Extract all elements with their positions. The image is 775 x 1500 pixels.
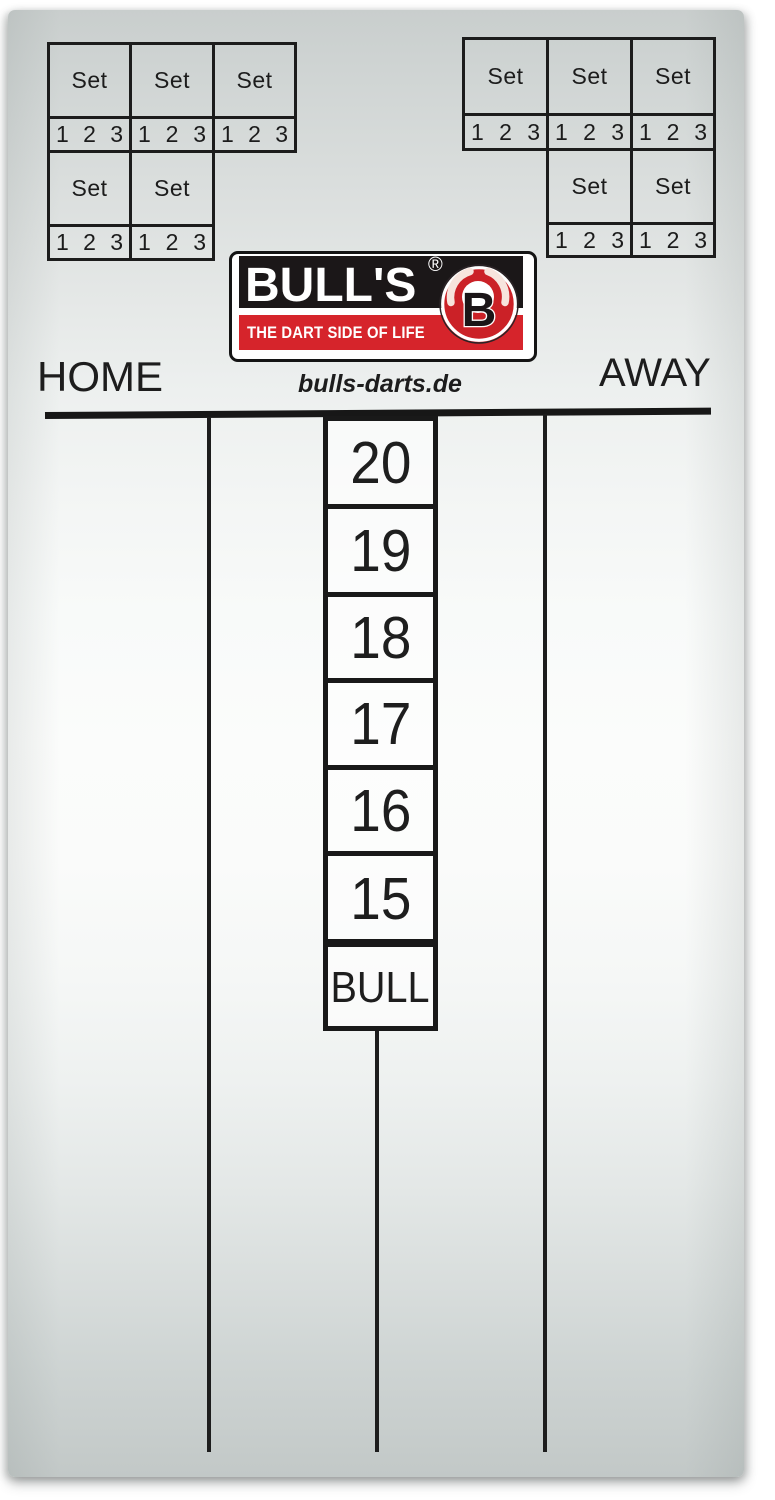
- svg-text:B: B: [462, 284, 497, 337]
